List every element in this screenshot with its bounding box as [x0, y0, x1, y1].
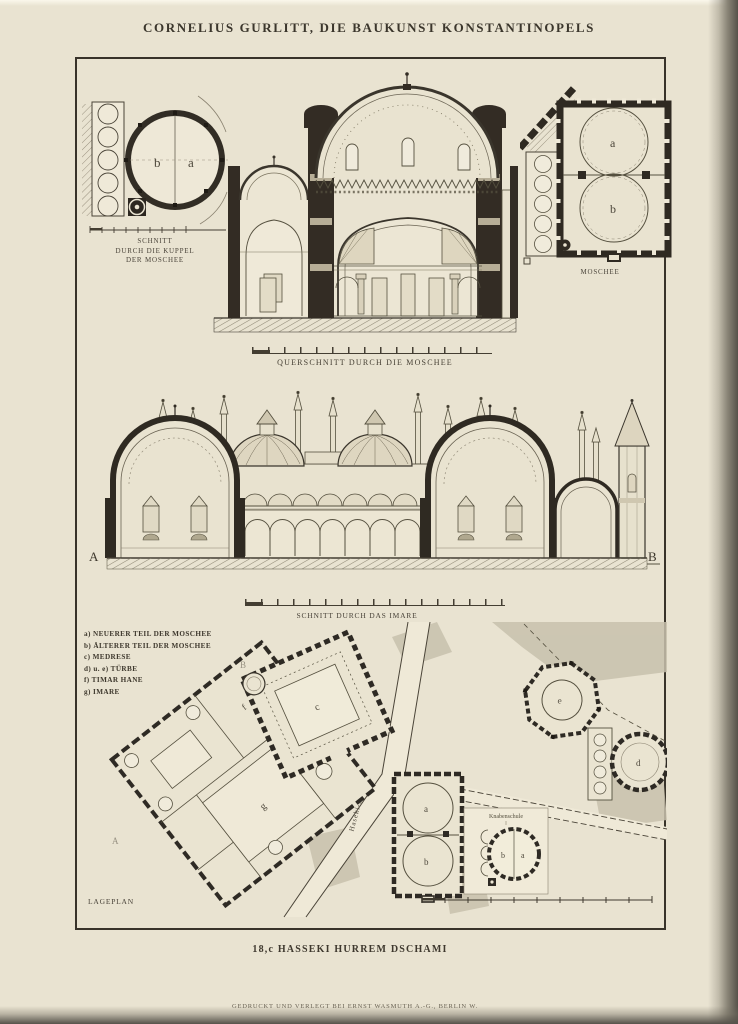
- site-marker-b: B: [240, 660, 246, 670]
- site-mosque: a b: [394, 774, 462, 902]
- imaret-caption: SCHNITT DURCH DAS IMARE: [207, 611, 507, 621]
- site-plan-caption: LAGEPLAN: [88, 897, 168, 907]
- inset-label-a: a: [521, 851, 525, 860]
- imaret-section-drawing: A B: [85, 388, 660, 592]
- page-title: CORNELIUS GURLITT, DIE BAUKUNST KONSTANT…: [0, 20, 738, 36]
- corner-tower: [615, 399, 649, 558]
- main-dome: [316, 72, 500, 192]
- imaret-marker-b: B: [648, 549, 657, 564]
- mosque-plan-label-a: a: [610, 136, 616, 150]
- hatch-band: [82, 104, 92, 216]
- imaret-center-block: [230, 410, 428, 558]
- mosque-plan-label-b: b: [610, 202, 616, 216]
- left-wall: [228, 166, 240, 318]
- school-inset: Knabenschule b a: [464, 808, 548, 894]
- site-marker-a: A: [112, 836, 119, 846]
- inset-label-b: b: [501, 851, 505, 860]
- entry-arcade: [526, 152, 560, 256]
- imaret-marker-a: A: [89, 549, 99, 564]
- prayer-hall: [556, 99, 670, 262]
- small-arch: [555, 479, 617, 558]
- imaret-scale-bar: [245, 599, 505, 606]
- plate-caption: 18,c HASSEKI HURREM DSCHAMI: [0, 944, 700, 955]
- scan-edge-bottom: [0, 1006, 738, 1024]
- book-page: CORNELIUS GURLITT, DIE BAUKUNST KONSTANT…: [0, 0, 738, 1024]
- mosque-plan-caption: MOSCHEE: [540, 268, 660, 278]
- site-plan-drawing: Haseki-Sokak g f A B: [92, 622, 667, 918]
- dome-plan-drawing: b a: [80, 88, 232, 240]
- scan-edge-right: [708, 0, 738, 1024]
- site-label-tuerbe-d: d: [636, 758, 641, 768]
- mosque-plan-drawing: a b: [520, 84, 680, 266]
- fig1-scale-bar: [90, 226, 226, 233]
- site-label-mosque-a: a: [424, 804, 428, 814]
- cross-section-scale-bar: [252, 347, 492, 354]
- dome-plan-label-a: a: [188, 155, 194, 170]
- right-arch: [420, 405, 560, 559]
- side-gallery: [92, 102, 124, 216]
- dome-plan-label-b: b: [154, 155, 161, 170]
- cross-section-drawing: [212, 70, 518, 348]
- minaret-base: [128, 198, 146, 216]
- site-label-mosque-b: b: [424, 857, 429, 867]
- cross-section-caption: QUERSCHNITT DURCH DIE MOSCHEE: [212, 358, 518, 367]
- scan-edge-top: [0, 0, 738, 6]
- school-label: Knabenschule: [489, 814, 523, 820]
